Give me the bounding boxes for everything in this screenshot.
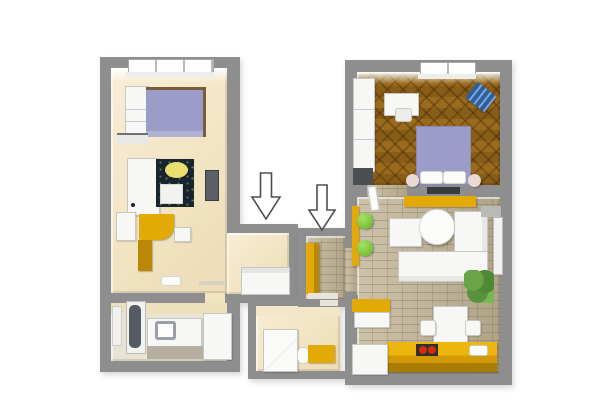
right-kitchen-yellow-cabinet <box>352 299 390 312</box>
right-bath-wall-bottom <box>248 371 345 379</box>
right-side-window <box>493 217 503 275</box>
right-bedside-pouf-left <box>406 174 419 187</box>
right-burner-2 <box>428 346 436 354</box>
right-kitchen-sink <box>469 345 488 356</box>
right-hall-wall-west <box>298 228 306 307</box>
right-hall-yellow-wardrobe <box>306 243 319 294</box>
right-plant <box>464 270 494 303</box>
right-dining-chair-left <box>420 320 436 336</box>
right-dark-dresser <box>353 168 373 185</box>
right-bedroom-window-sill <box>418 74 476 79</box>
right-yellow-sideboard <box>404 196 476 207</box>
right-bedside-pouf-right <box>468 174 481 187</box>
right-green-pouf-1 <box>357 213 373 229</box>
right-round-table <box>419 209 455 245</box>
apartment-right <box>0 0 600 411</box>
right-kitchen-cabinet-front <box>354 312 390 328</box>
right-wall-pier <box>481 206 501 217</box>
right-shower-cabin <box>263 329 298 372</box>
down-arrow-left <box>250 172 282 222</box>
right-dining-chair-right <box>465 320 481 336</box>
right-green-pouf-2 <box>357 240 373 256</box>
right-yellow-bench <box>308 345 335 363</box>
right-hall-threshold <box>308 293 338 299</box>
down-arrow-right <box>307 184 337 232</box>
right-desk-chair <box>395 108 412 122</box>
right-bath-wall-west <box>248 298 256 379</box>
right-bed-pillow-right <box>443 171 466 184</box>
right-wall-tv <box>427 187 460 194</box>
right-bath-door-opening <box>320 300 338 306</box>
right-square-ottoman <box>389 218 422 247</box>
right-burner-1 <box>419 346 427 354</box>
right-kitchen-fridge <box>352 344 388 375</box>
right-bathroom-wall-face <box>256 306 340 316</box>
right-bedroom-wardrobe <box>353 78 375 172</box>
right-bath-wall-top <box>248 298 306 306</box>
floorplan-canvas <box>0 0 600 411</box>
right-bed-pillow-left <box>420 171 443 184</box>
